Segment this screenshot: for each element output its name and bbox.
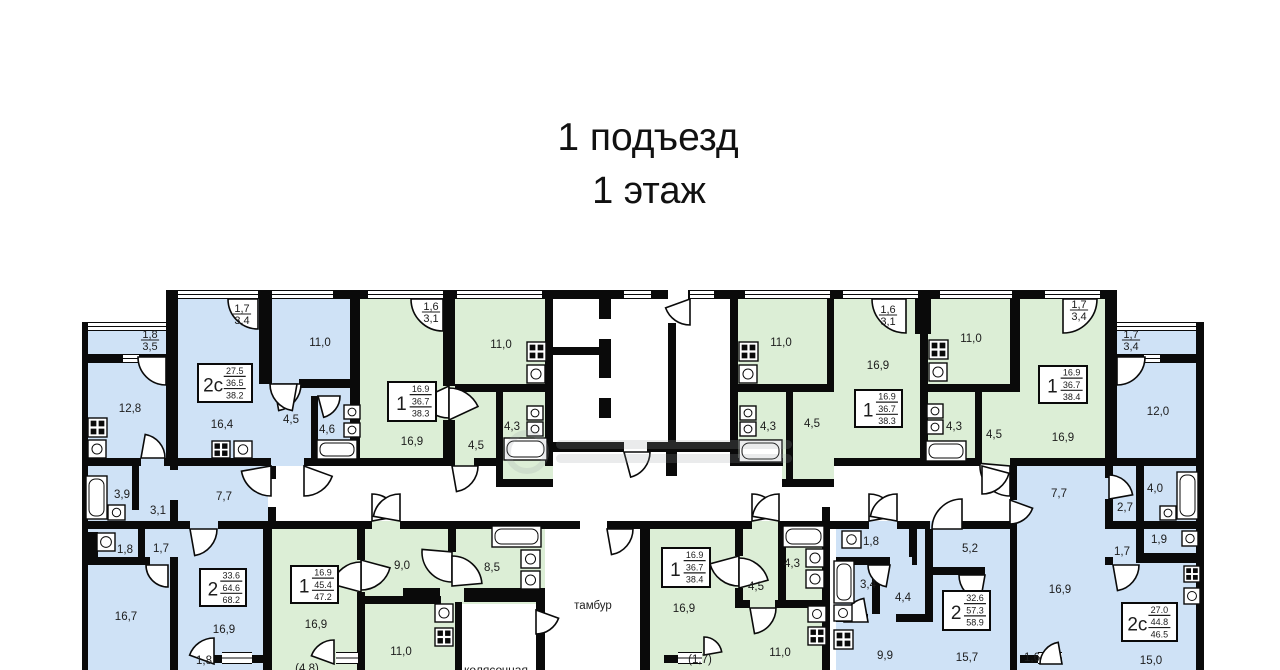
svg-text:16,9: 16,9 — [305, 619, 327, 631]
svg-text:15,7: 15,7 — [956, 652, 978, 664]
svg-text:3,4: 3,4 — [1071, 311, 1086, 323]
svg-text:1: 1 — [396, 394, 407, 415]
svg-text:5,2: 5,2 — [962, 543, 978, 555]
svg-text:1,7: 1,7 — [1114, 546, 1130, 558]
svg-text:11,0: 11,0 — [960, 333, 982, 345]
svg-text:7,7: 7,7 — [1051, 488, 1067, 500]
svg-text:1,8: 1,8 — [196, 655, 212, 667]
svg-text:1 этаж: 1 этаж — [592, 170, 706, 212]
svg-text:2,7: 2,7 — [1117, 502, 1133, 514]
svg-text:16,9: 16,9 — [1049, 584, 1071, 596]
svg-text:4,5: 4,5 — [804, 418, 820, 430]
svg-text:36.7: 36.7 — [878, 404, 896, 414]
svg-text:16.9: 16.9 — [1063, 368, 1081, 378]
svg-text:57.3: 57.3 — [966, 605, 984, 615]
svg-text:1,8: 1,8 — [863, 536, 879, 548]
svg-text:3,5: 3,5 — [142, 341, 157, 353]
svg-text:27.5: 27.5 — [226, 366, 244, 376]
svg-text:колясочная: колясочная — [464, 663, 528, 670]
svg-text:46.5: 46.5 — [1151, 629, 1169, 639]
svg-text:33.6: 33.6 — [223, 571, 241, 581]
svg-text:4,5: 4,5 — [986, 429, 1002, 441]
svg-text:16.9: 16.9 — [878, 392, 896, 402]
svg-text:1: 1 — [299, 577, 310, 598]
svg-text:1,7: 1,7 — [1123, 329, 1138, 341]
svg-text:32.6: 32.6 — [966, 593, 984, 603]
svg-text:1 подъезд: 1 подъезд — [557, 116, 739, 159]
svg-text:3,4: 3,4 — [860, 579, 877, 591]
svg-text:9,0: 9,0 — [394, 560, 410, 572]
svg-text:2: 2 — [208, 580, 219, 601]
svg-text:12,0: 12,0 — [1147, 406, 1169, 418]
svg-text:1,6: 1,6 — [423, 301, 438, 313]
svg-text:11,0: 11,0 — [770, 337, 792, 349]
svg-text:тамбур: тамбур — [574, 600, 612, 612]
svg-text:15,0: 15,0 — [1140, 655, 1162, 667]
svg-text:4,3: 4,3 — [946, 421, 962, 433]
svg-text:2: 2 — [951, 603, 962, 624]
svg-text:11,0: 11,0 — [769, 647, 791, 659]
svg-text:(1,7): (1,7) — [688, 654, 712, 666]
svg-text:16,9: 16,9 — [213, 624, 235, 636]
svg-text:1,8: 1,8 — [142, 329, 157, 341]
svg-text:3,9: 3,9 — [114, 489, 130, 501]
svg-text:1,6: 1,6 — [1024, 652, 1040, 664]
svg-text:3,4: 3,4 — [1123, 341, 1138, 353]
svg-text:16,9: 16,9 — [401, 436, 423, 448]
svg-text:47.2: 47.2 — [314, 592, 332, 602]
svg-text:11,0: 11,0 — [309, 337, 331, 349]
svg-text:4,6: 4,6 — [319, 424, 335, 436]
svg-text:16,9: 16,9 — [673, 603, 695, 615]
svg-text:36.7: 36.7 — [1063, 380, 1081, 390]
svg-text:64.6: 64.6 — [223, 583, 241, 593]
svg-text:2с: 2с — [1127, 614, 1147, 635]
svg-text:16.9: 16.9 — [412, 384, 430, 394]
svg-text:9,9: 9,9 — [877, 650, 893, 662]
svg-text:11,0: 11,0 — [390, 646, 412, 658]
svg-text:36.7: 36.7 — [686, 562, 704, 572]
svg-text:27.0: 27.0 — [1151, 605, 1169, 615]
svg-text:1: 1 — [1047, 377, 1058, 398]
svg-text:4,5: 4,5 — [468, 440, 484, 452]
svg-text:4,3: 4,3 — [504, 421, 520, 433]
svg-text:7,7: 7,7 — [216, 491, 232, 503]
svg-text:4,3: 4,3 — [760, 421, 776, 433]
svg-text:1,6: 1,6 — [880, 304, 895, 316]
svg-text:16,9: 16,9 — [1052, 432, 1074, 444]
svg-text:11,0: 11,0 — [490, 339, 512, 351]
svg-text:3,1: 3,1 — [880, 316, 895, 328]
svg-text:4,4: 4,4 — [895, 592, 912, 604]
svg-text:4,3: 4,3 — [784, 558, 800, 570]
svg-text:1,7: 1,7 — [153, 543, 169, 555]
svg-text:2с: 2с — [203, 375, 223, 396]
svg-text:4,0: 4,0 — [1147, 483, 1163, 495]
svg-text:(4,8): (4,8) — [295, 663, 319, 670]
svg-text:16,4: 16,4 — [211, 419, 234, 431]
svg-text:4,5: 4,5 — [748, 581, 764, 593]
svg-text:38.4: 38.4 — [686, 575, 704, 585]
svg-text:1: 1 — [863, 401, 874, 422]
svg-text:44.8: 44.8 — [1151, 617, 1169, 627]
svg-text:1,8: 1,8 — [117, 544, 133, 556]
svg-text:12,8: 12,8 — [119, 403, 141, 415]
svg-text:38.3: 38.3 — [878, 416, 896, 426]
svg-text:3,1: 3,1 — [423, 313, 438, 325]
svg-text:68.2: 68.2 — [223, 595, 241, 605]
svg-text:16.9: 16.9 — [686, 550, 704, 560]
svg-text:58.9: 58.9 — [966, 618, 984, 628]
svg-text:38.3: 38.3 — [412, 409, 430, 419]
svg-text:16,7: 16,7 — [115, 611, 137, 623]
svg-text:3,1: 3,1 — [150, 505, 166, 517]
svg-text:16.9: 16.9 — [314, 568, 332, 578]
svg-text:36.5: 36.5 — [226, 378, 244, 388]
svg-text:38.4: 38.4 — [1063, 392, 1081, 402]
svg-text:1,7: 1,7 — [234, 303, 249, 315]
svg-text:38.2: 38.2 — [226, 390, 244, 400]
svg-text:36.7: 36.7 — [412, 396, 430, 406]
svg-text:3,4: 3,4 — [234, 315, 249, 327]
svg-text:8,5: 8,5 — [484, 562, 500, 574]
svg-text:16,9: 16,9 — [867, 360, 889, 372]
svg-text:1,7: 1,7 — [1071, 299, 1086, 311]
svg-text:45.4: 45.4 — [314, 580, 332, 590]
svg-text:4,5: 4,5 — [283, 414, 299, 426]
svg-text:1: 1 — [670, 560, 681, 581]
svg-text:1,9: 1,9 — [1151, 534, 1167, 546]
